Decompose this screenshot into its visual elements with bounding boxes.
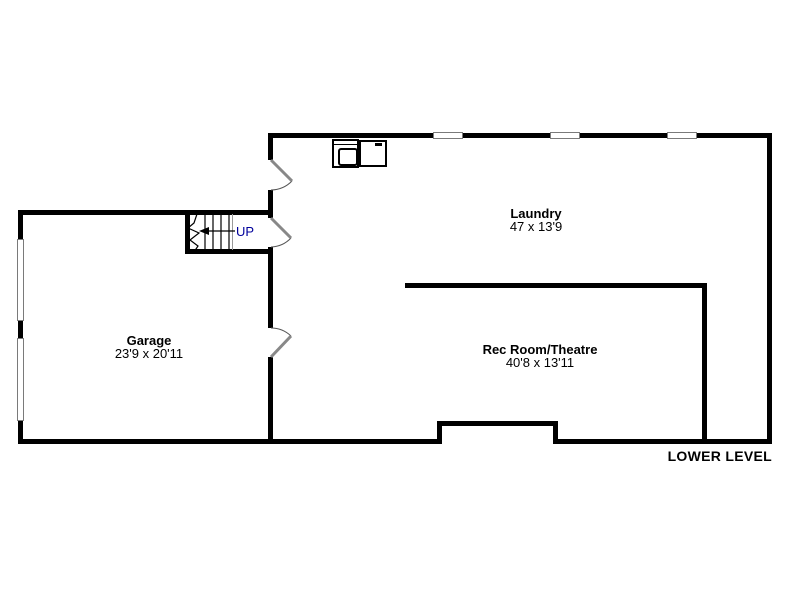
door-laundry-1 bbox=[271, 160, 292, 190]
garage-dimensions: 23'9 x 20'11 bbox=[46, 347, 252, 360]
stairs-up-label: UP bbox=[236, 224, 254, 239]
wall-bottom-east bbox=[553, 439, 772, 444]
garage-door-1 bbox=[17, 239, 24, 321]
up-arrow-icon bbox=[199, 227, 235, 235]
wall-notch-top bbox=[437, 421, 558, 426]
door-laundry-2 bbox=[271, 218, 291, 247]
wall-garage-top bbox=[18, 210, 273, 215]
rec-room-label: Rec Room/Theatre 40'8 x 13'11 bbox=[440, 343, 640, 369]
window-top-2 bbox=[550, 132, 580, 139]
sink-counter-edge bbox=[334, 144, 357, 145]
laundry-sink-icon bbox=[332, 139, 359, 168]
wall-bottom-west bbox=[18, 439, 442, 444]
staircase bbox=[188, 214, 235, 252]
sink-basin bbox=[338, 148, 358, 166]
wall-recroom-right bbox=[702, 283, 707, 444]
floor-plan: Laundry 47 x 13'9 Garage 23'9 x 20'11 Re… bbox=[0, 0, 800, 600]
rec-room-dimensions: 40'8 x 13'11 bbox=[440, 356, 640, 369]
wall-partition-seg4 bbox=[268, 357, 273, 444]
wall-stairs-west bbox=[185, 212, 190, 254]
door-rec-room bbox=[271, 328, 291, 357]
wall-partition-seg1 bbox=[268, 133, 273, 160]
washer-control-icon bbox=[375, 143, 382, 146]
wall-partition-seg3 bbox=[268, 247, 273, 328]
laundry-dimensions: 47 x 13'9 bbox=[436, 220, 636, 233]
wall-stairs-south bbox=[185, 249, 273, 254]
washer-icon bbox=[359, 140, 387, 167]
garage-door-2 bbox=[17, 338, 24, 421]
garage-label: Garage 23'9 x 20'11 bbox=[46, 334, 252, 360]
window-top-1 bbox=[433, 132, 463, 139]
plan-symbols-layer bbox=[0, 0, 800, 600]
wall-recroom-top bbox=[405, 283, 707, 288]
wall-partition-seg2 bbox=[268, 190, 273, 218]
wall-right bbox=[767, 133, 772, 444]
level-title: LOWER LEVEL bbox=[472, 448, 772, 464]
laundry-label: Laundry 47 x 13'9 bbox=[436, 207, 636, 233]
window-top-3 bbox=[667, 132, 697, 139]
